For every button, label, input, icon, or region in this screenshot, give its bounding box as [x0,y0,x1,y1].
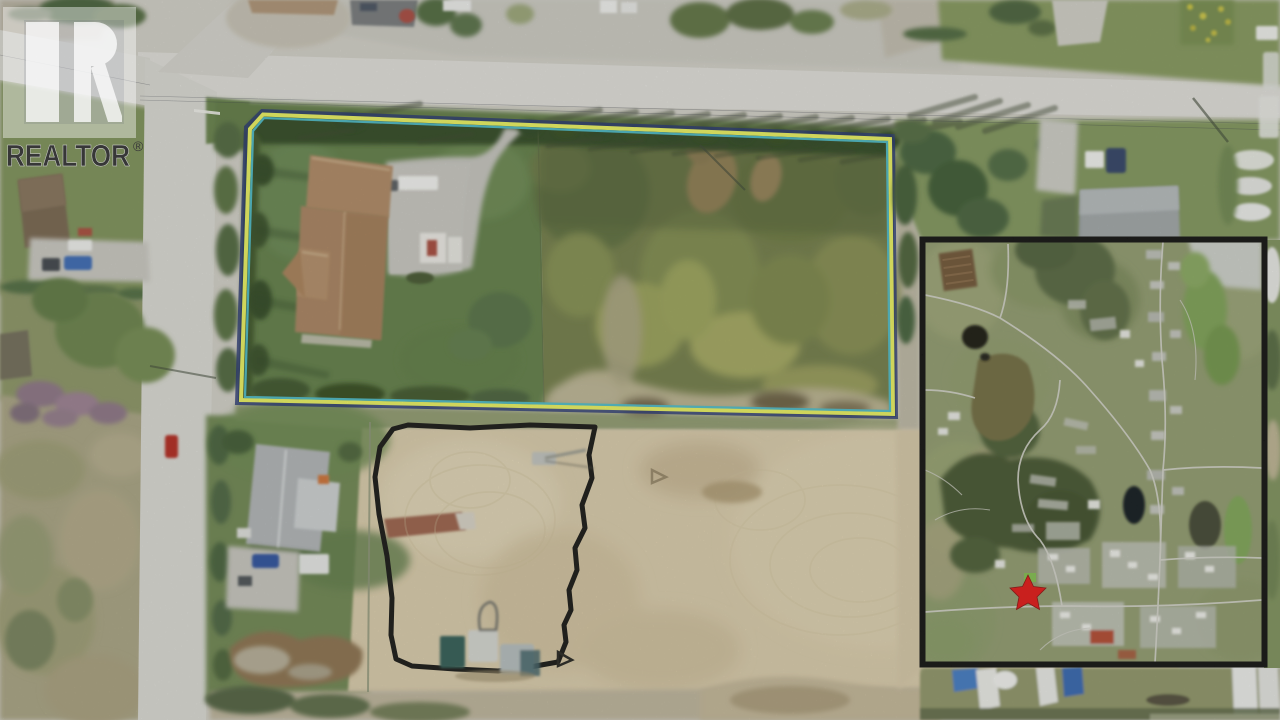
svg-text:REALTOR: REALTOR [6,138,130,173]
svg-text:®: ® [133,138,144,154]
